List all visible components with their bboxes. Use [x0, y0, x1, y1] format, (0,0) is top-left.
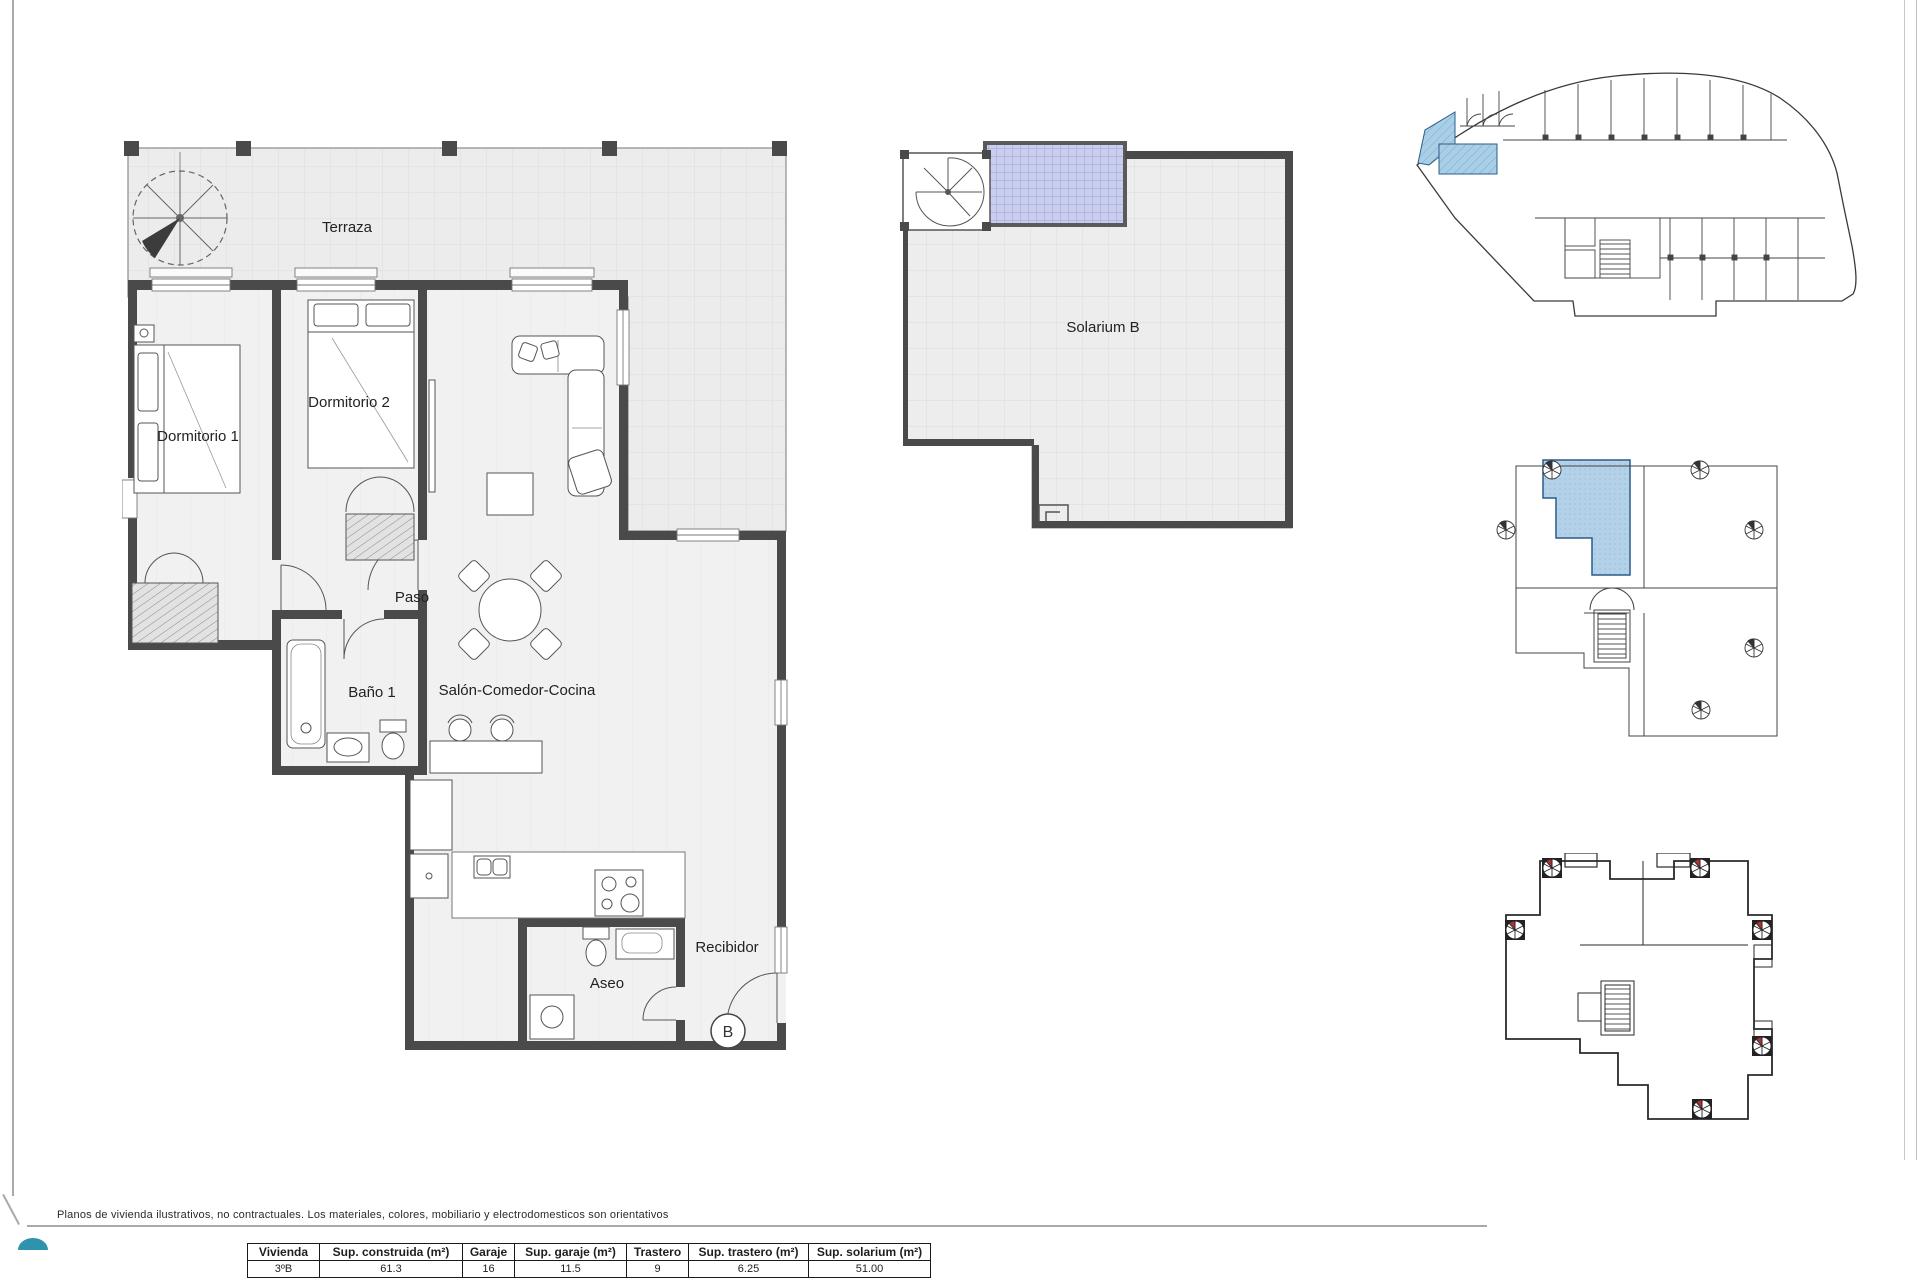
room-label-dormitorio2: Dormitorio 2	[308, 394, 390, 411]
room-label-recibidor: Recibidor	[695, 939, 758, 956]
room-label-aseo: Aseo	[590, 975, 624, 992]
room-label-bano1: Baño 1	[348, 684, 396, 701]
sheet-border-right-inner	[1904, 0, 1905, 1160]
col-sup-solarium: Sup. solarium (m²)	[809, 1244, 931, 1261]
val-sup-garaje: 11.5	[515, 1261, 627, 1278]
col-trastero: Trastero	[627, 1244, 689, 1261]
roof-outline	[1506, 853, 1772, 1119]
key-building-outline	[1516, 466, 1777, 736]
val-vivienda: 3ºB	[248, 1261, 320, 1278]
unit-letter: B	[723, 1024, 734, 1041]
table-row: 3ºB 61.3 16 11.5 9 6.25 51.00	[248, 1261, 931, 1278]
val-sup-construida: 61.3	[320, 1261, 463, 1278]
surface-summary-table: Vivienda Sup. construida (m²) Garaje Sup…	[247, 1243, 931, 1278]
solarium-plan: Solarium B	[900, 140, 1320, 560]
roof-spiral-stairs	[1505, 858, 1772, 1119]
solarium-pergola-highlight	[985, 143, 1125, 225]
val-sup-trastero: 6.25	[689, 1261, 809, 1278]
room-label-dormitorio1: Dormitorio 1	[157, 428, 239, 445]
col-sup-trastero: Sup. trastero (m²)	[689, 1244, 809, 1261]
main-floor-plan: B Terraza Dormitorio 1 Dormitorio 2 Paso…	[122, 140, 802, 1070]
garage-parking-top	[1503, 78, 1787, 140]
val-sup-solarium: 51.00	[809, 1261, 931, 1278]
col-sup-garaje: Sup. garaje (m²)	[515, 1244, 627, 1261]
room-label-paso: Paso	[395, 589, 429, 606]
col-garaje: Garaje	[463, 1244, 515, 1261]
room-label-terraza: Terraza	[322, 219, 373, 236]
solarium-stair-room	[900, 150, 991, 231]
garage-key-plan	[1415, 68, 1865, 343]
room-label-salon: Salón-Comedor-Cocina	[439, 682, 596, 699]
solarium-label: Solarium B	[1066, 319, 1139, 336]
sheet-border-corner	[2, 1194, 20, 1225]
floor-key-plan	[1494, 458, 1794, 753]
garage-highlight-strip	[1439, 144, 1497, 174]
val-trastero: 9	[627, 1261, 689, 1278]
brand-logo-arc	[16, 1236, 50, 1252]
val-garaje: 16	[463, 1261, 515, 1278]
sheet-border-right-outer	[1916, 0, 1917, 1160]
footer-disclaimer: Planos de vivienda ilustrativos, no cont…	[57, 1209, 669, 1221]
roof-key-plan	[1498, 853, 1793, 1138]
sheet-border-left	[12, 0, 14, 1196]
sheet-border-bottom	[27, 1225, 1487, 1227]
garage-core-and-lower	[1535, 218, 1825, 300]
col-sup-construida: Sup. construida (m²)	[320, 1244, 463, 1261]
plan-sheet: { "sheet": { "footer_note": "Planos de v…	[0, 0, 1920, 1280]
table-header-row: Vivienda Sup. construida (m²) Garaje Sup…	[248, 1244, 931, 1261]
roof-inner-lines	[1578, 861, 1772, 1043]
unit-label-bubble: B	[711, 1014, 745, 1048]
col-vivienda: Vivienda	[248, 1244, 320, 1261]
